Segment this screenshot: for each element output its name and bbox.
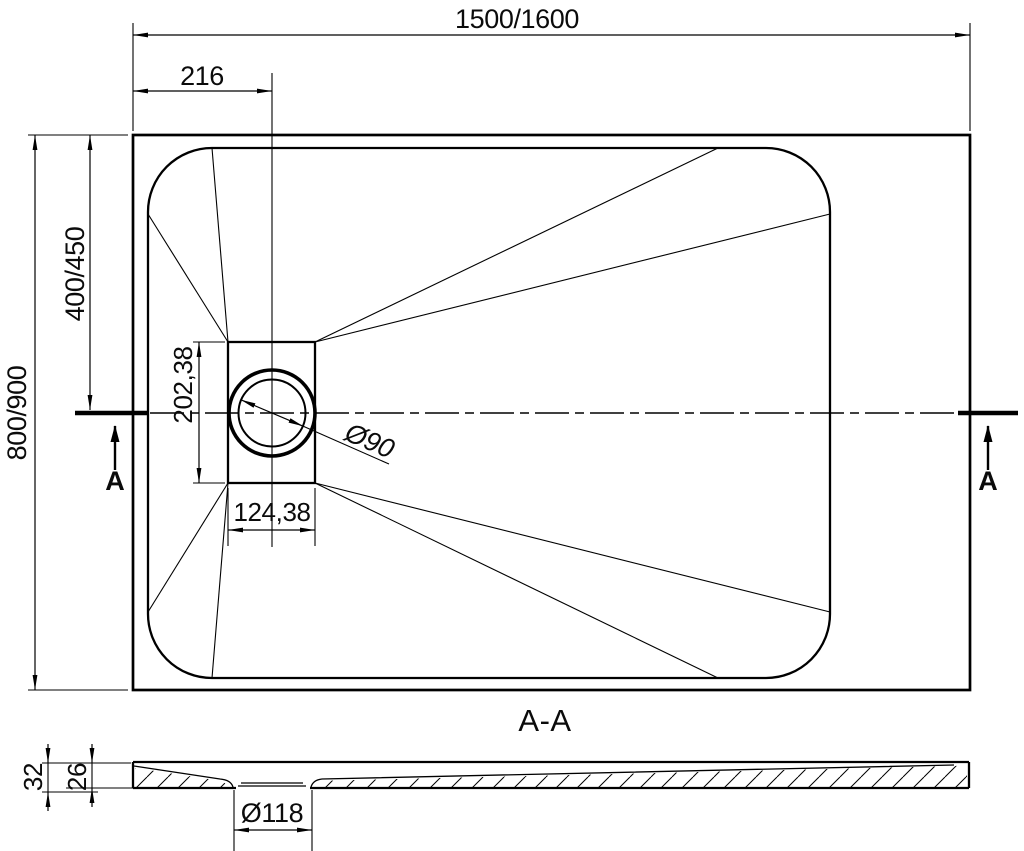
dim-recess-diameter-label: Ø118 bbox=[241, 798, 303, 828]
dim-overall-depth: 800/900 bbox=[2, 135, 35, 690]
dim-overall-width: 1500/1600 bbox=[133, 4, 970, 35]
dim-section-height-32: 32 bbox=[18, 744, 48, 811]
dim-section-height-32-label: 32 bbox=[18, 763, 48, 791]
dim-drain-box-width: 124,38 bbox=[228, 497, 315, 530]
dim-drain-offset-x: 216 bbox=[133, 61, 272, 91]
section-marker-right: A bbox=[978, 426, 998, 496]
dim-section-height-26-label: 26 bbox=[62, 763, 92, 791]
section-label-right: A bbox=[978, 466, 998, 496]
dim-overall-depth-label: 800/900 bbox=[2, 366, 32, 461]
dim-drain-offset-y: 400/450 bbox=[60, 135, 90, 410]
cad-drawing-svg: A A 1500/1600 216 bbox=[0, 0, 1024, 851]
dim-recess-diameter: Ø118 bbox=[234, 798, 312, 830]
hatch-left-wedge bbox=[135, 768, 230, 787]
dim-drain-offset-x-label: 216 bbox=[180, 61, 224, 91]
section-label-left: A bbox=[105, 466, 125, 496]
dim-overall-width-label: 1500/1600 bbox=[455, 4, 579, 34]
section-title: A-A bbox=[518, 703, 571, 738]
dim-section-height-26: 26 bbox=[62, 744, 92, 807]
dim-drain-box-height: 202,38 bbox=[168, 342, 199, 483]
dim-drain-box-height-label: 202,38 bbox=[168, 346, 198, 423]
dim-drain-box-width-label: 124,38 bbox=[233, 497, 310, 527]
section-view: A-A 32 bbox=[18, 703, 969, 851]
hatch-right-wedge bbox=[314, 765, 967, 787]
top-view: A A 1500/1600 216 bbox=[2, 4, 1018, 690]
section-marker-left: A bbox=[105, 426, 125, 496]
dim-drain-diameter-label: Ø90 bbox=[340, 417, 399, 465]
technical-drawing-page: A A 1500/1600 216 bbox=[0, 0, 1024, 851]
dim-drain-offset-y-label: 400/450 bbox=[60, 227, 90, 322]
